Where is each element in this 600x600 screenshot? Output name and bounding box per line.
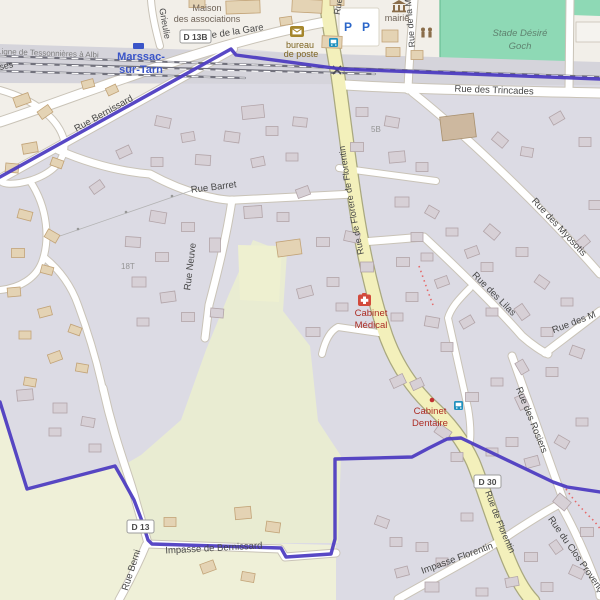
building (416, 543, 428, 552)
building (389, 151, 406, 163)
building (137, 318, 149, 326)
building (156, 253, 169, 262)
post-office-icon (290, 26, 304, 37)
building (292, 0, 323, 13)
building (195, 154, 211, 165)
road-ref: D 13 (132, 522, 150, 532)
road-ref: D 13B (183, 32, 207, 42)
building (241, 104, 264, 119)
building (89, 444, 101, 452)
building (486, 308, 498, 316)
building (336, 303, 348, 311)
building (386, 48, 400, 57)
building (280, 16, 293, 26)
train-station-icon (133, 43, 144, 49)
building (440, 113, 477, 141)
building (491, 378, 503, 386)
building (306, 328, 320, 337)
building (164, 518, 176, 527)
map-canvas[interactable]: Maison des associations Grieulie Rue de … (0, 0, 600, 600)
poi-label: Cabinet (414, 406, 447, 417)
building (286, 153, 298, 161)
bus-stop-icon (329, 38, 338, 47)
building (210, 238, 221, 252)
building (384, 116, 400, 128)
building (411, 233, 423, 242)
building (451, 453, 463, 462)
building (516, 248, 528, 257)
poi-label: Médical (355, 320, 388, 331)
station-name: Marssac- (117, 51, 165, 63)
building (356, 108, 368, 117)
poi-label: Dentaire (412, 418, 448, 429)
building (446, 228, 458, 236)
building (397, 258, 410, 267)
building (425, 582, 439, 592)
building (525, 553, 538, 562)
building (7, 287, 21, 297)
building (391, 313, 403, 321)
building (476, 588, 488, 596)
building (505, 576, 519, 587)
building (151, 158, 163, 167)
building (382, 30, 398, 42)
building (461, 513, 473, 521)
building (317, 238, 330, 247)
building (210, 308, 224, 318)
building (589, 201, 600, 210)
map-svg: Maison des associations Grieulie Rue de … (0, 0, 600, 600)
building (421, 253, 433, 261)
building (576, 418, 588, 426)
parking-icon: P (344, 20, 352, 34)
building (235, 506, 252, 519)
building (53, 403, 67, 413)
building (49, 428, 61, 436)
housenumber: 5B (371, 125, 381, 134)
building (406, 293, 418, 302)
building (541, 583, 553, 592)
doctors-icon (358, 293, 371, 306)
building (327, 278, 339, 287)
building (506, 438, 518, 447)
station-name: sur-Tarn (119, 64, 163, 76)
building (390, 538, 402, 547)
building (581, 528, 594, 537)
building (481, 263, 493, 272)
poi-label: mairie (385, 13, 410, 23)
building (149, 210, 167, 224)
building (579, 138, 591, 147)
bus-stop-icon (454, 401, 463, 410)
building (265, 521, 280, 533)
building (181, 131, 195, 142)
building (561, 298, 573, 306)
building (226, 0, 260, 14)
poi-label: des associations (174, 14, 241, 24)
building (441, 343, 453, 352)
building (411, 51, 423, 60)
building (160, 291, 176, 303)
building (277, 213, 289, 222)
poi-label: Cabinet (355, 308, 388, 319)
building (182, 223, 195, 232)
building (125, 236, 141, 247)
building (520, 147, 533, 158)
building (361, 262, 374, 272)
building (241, 571, 255, 582)
building (293, 117, 308, 127)
building (416, 163, 428, 172)
building (576, 22, 600, 42)
building (23, 377, 36, 387)
building (12, 249, 25, 258)
building (351, 143, 364, 152)
dentist-icon (430, 398, 435, 403)
poi-label: de poste (284, 49, 319, 59)
building (75, 363, 88, 373)
building (224, 131, 240, 143)
stadium-label: Stade Désiré (493, 28, 548, 39)
road-ref: D 30 (479, 477, 497, 487)
building (19, 331, 31, 339)
building (182, 313, 195, 322)
building (546, 368, 558, 377)
building (81, 416, 95, 427)
stadium-label: Goch (509, 41, 532, 52)
building (17, 389, 34, 401)
housenumber: 18T (121, 262, 135, 271)
building (424, 316, 440, 328)
building (132, 277, 146, 287)
small-field (238, 245, 282, 302)
parking-icon: P (362, 20, 370, 34)
building (276, 239, 302, 257)
building (395, 197, 409, 207)
building (466, 393, 479, 402)
poi-label: Maison (192, 3, 221, 13)
building (244, 205, 263, 218)
building (22, 142, 39, 154)
building (266, 127, 278, 136)
